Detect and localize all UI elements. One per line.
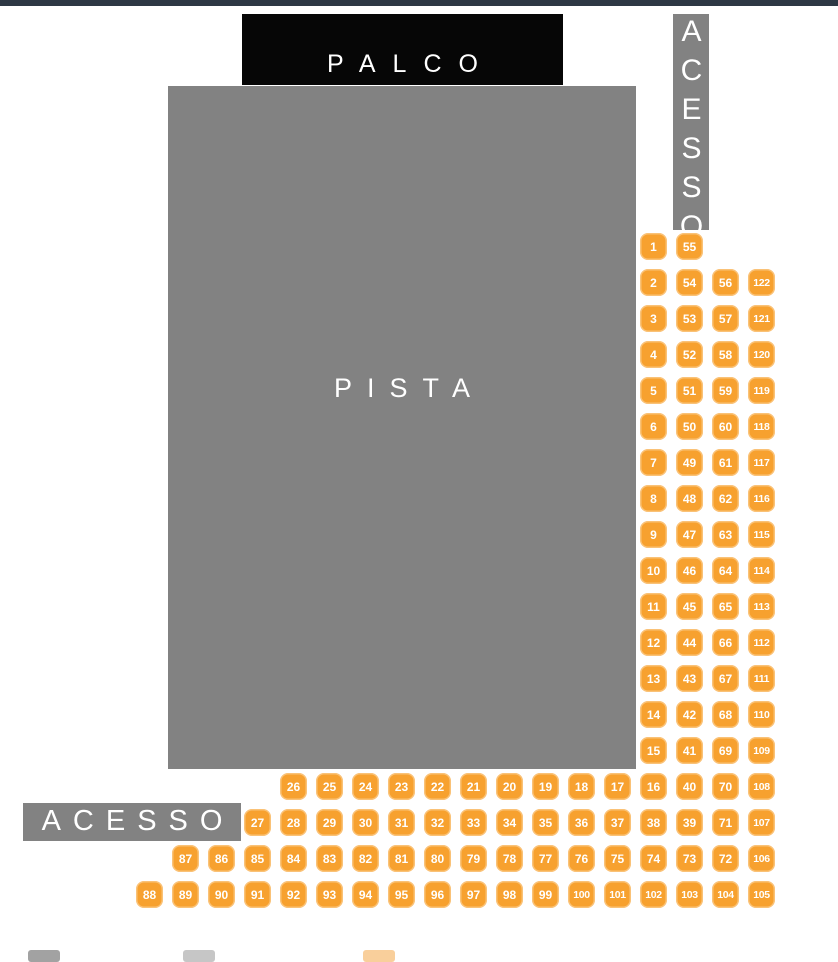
seat-90[interactable]: 90 xyxy=(208,881,235,908)
seat-62[interactable]: 62 xyxy=(712,485,739,512)
seat-55[interactable]: 55 xyxy=(676,233,703,260)
seat-70[interactable]: 70 xyxy=(712,773,739,800)
seat-118[interactable]: 118 xyxy=(748,413,775,440)
seat-17[interactable]: 17 xyxy=(604,773,631,800)
seat-89[interactable]: 89 xyxy=(172,881,199,908)
seat-18[interactable]: 18 xyxy=(568,773,595,800)
seat-113[interactable]: 113 xyxy=(748,593,775,620)
seat-117[interactable]: 117 xyxy=(748,449,775,476)
seat-26[interactable]: 26 xyxy=(280,773,307,800)
seat-119[interactable]: 119 xyxy=(748,377,775,404)
seat-9[interactable]: 9 xyxy=(640,521,667,548)
seat-53[interactable]: 53 xyxy=(676,305,703,332)
seat-20[interactable]: 20 xyxy=(496,773,523,800)
seat-108[interactable]: 108 xyxy=(748,773,775,800)
seat-104[interactable]: 104 xyxy=(712,881,739,908)
seat-76[interactable]: 76 xyxy=(568,845,595,872)
seat-28[interactable]: 28 xyxy=(280,809,307,836)
seat-107[interactable]: 107 xyxy=(748,809,775,836)
seat-36[interactable]: 36 xyxy=(568,809,595,836)
seat-59[interactable]: 59 xyxy=(712,377,739,404)
seat-7[interactable]: 7 xyxy=(640,449,667,476)
seat-93[interactable]: 93 xyxy=(316,881,343,908)
seat-44[interactable]: 44 xyxy=(676,629,703,656)
seat-105[interactable]: 105 xyxy=(748,881,775,908)
seat-39[interactable]: 39 xyxy=(676,809,703,836)
seat-110[interactable]: 110 xyxy=(748,701,775,728)
seat-52[interactable]: 52 xyxy=(676,341,703,368)
seat-32[interactable]: 32 xyxy=(424,809,451,836)
seat-5[interactable]: 5 xyxy=(640,377,667,404)
seat-49[interactable]: 49 xyxy=(676,449,703,476)
seat-4[interactable]: 4 xyxy=(640,341,667,368)
access-corridor-right-label: ACESSO xyxy=(674,14,708,230)
seat-42[interactable]: 42 xyxy=(676,701,703,728)
top-bar xyxy=(0,0,838,6)
seat-98[interactable]: 98 xyxy=(496,881,523,908)
seat-51[interactable]: 51 xyxy=(676,377,703,404)
seat-map-canvas: PALCO PISTA ACESSO ACESSO 15525456122353… xyxy=(0,0,838,954)
seat-69[interactable]: 69 xyxy=(712,737,739,764)
seat-73[interactable]: 73 xyxy=(676,845,703,872)
seat-22[interactable]: 22 xyxy=(424,773,451,800)
seat-25[interactable]: 25 xyxy=(316,773,343,800)
seat-46[interactable]: 46 xyxy=(676,557,703,584)
seat-92[interactable]: 92 xyxy=(280,881,307,908)
seat-56[interactable]: 56 xyxy=(712,269,739,296)
seat-103[interactable]: 103 xyxy=(676,881,703,908)
seat-82[interactable]: 82 xyxy=(352,845,379,872)
access-corridor-right: ACESSO xyxy=(673,14,709,230)
seat-29[interactable]: 29 xyxy=(316,809,343,836)
seat-57[interactable]: 57 xyxy=(712,305,739,332)
seat-81[interactable]: 81 xyxy=(388,845,415,872)
seat-19[interactable]: 19 xyxy=(532,773,559,800)
seat-66[interactable]: 66 xyxy=(712,629,739,656)
seat-41[interactable]: 41 xyxy=(676,737,703,764)
seat-75[interactable]: 75 xyxy=(604,845,631,872)
seat-88[interactable]: 88 xyxy=(136,881,163,908)
legend-swatch-gray xyxy=(28,950,60,962)
seat-109[interactable]: 109 xyxy=(748,737,775,764)
floor-zone-pista: PISTA xyxy=(168,86,636,769)
seat-77[interactable]: 77 xyxy=(532,845,559,872)
stage-label: PALCO xyxy=(310,50,495,85)
seat-45[interactable]: 45 xyxy=(676,593,703,620)
seat-63[interactable]: 63 xyxy=(712,521,739,548)
bottom-seat-block: 2625242322212019181716407010827282930313… xyxy=(136,773,776,909)
seat-99[interactable]: 99 xyxy=(532,881,559,908)
right-seat-block: 1552545612235357121452581205515911965060… xyxy=(640,233,776,801)
seat-30[interactable]: 30 xyxy=(352,809,379,836)
seat-21[interactable]: 21 xyxy=(460,773,487,800)
seat-61[interactable]: 61 xyxy=(712,449,739,476)
seat-8[interactable]: 8 xyxy=(640,485,667,512)
seat-38[interactable]: 38 xyxy=(640,809,667,836)
seat-94[interactable]: 94 xyxy=(352,881,379,908)
seat-1[interactable]: 1 xyxy=(640,233,667,260)
seat-12[interactable]: 12 xyxy=(640,629,667,656)
seat-68[interactable]: 68 xyxy=(712,701,739,728)
seat-114[interactable]: 114 xyxy=(748,557,775,584)
seat-91[interactable]: 91 xyxy=(244,881,271,908)
seat-100[interactable]: 100 xyxy=(568,881,595,908)
seat-54[interactable]: 54 xyxy=(676,269,703,296)
seat-43[interactable]: 43 xyxy=(676,665,703,692)
seat-87[interactable]: 87 xyxy=(172,845,199,872)
seat-74[interactable]: 74 xyxy=(640,845,667,872)
seat-6[interactable]: 6 xyxy=(640,413,667,440)
seat-58[interactable]: 58 xyxy=(712,341,739,368)
seat-96[interactable]: 96 xyxy=(424,881,451,908)
legend-swatch-light-gray xyxy=(183,950,215,962)
seat-86[interactable]: 86 xyxy=(208,845,235,872)
seat-116[interactable]: 116 xyxy=(748,485,775,512)
seat-112[interactable]: 112 xyxy=(748,629,775,656)
legend-swatch-light-orange xyxy=(363,950,395,962)
seat-85[interactable]: 85 xyxy=(244,845,271,872)
seat-14[interactable]: 14 xyxy=(640,701,667,728)
seat-27[interactable]: 27 xyxy=(244,809,271,836)
seat-11[interactable]: 11 xyxy=(640,593,667,620)
seat-10[interactable]: 10 xyxy=(640,557,667,584)
seat-34[interactable]: 34 xyxy=(496,809,523,836)
seat-16[interactable]: 16 xyxy=(640,773,667,800)
seat-64[interactable]: 64 xyxy=(712,557,739,584)
stage-palco: PALCO xyxy=(242,14,563,85)
seat-111[interactable]: 111 xyxy=(748,665,775,692)
seat-47[interactable]: 47 xyxy=(676,521,703,548)
seat-106[interactable]: 106 xyxy=(748,845,775,872)
seat-24[interactable]: 24 xyxy=(352,773,379,800)
seat-65[interactable]: 65 xyxy=(712,593,739,620)
seat-31[interactable]: 31 xyxy=(388,809,415,836)
seat-120[interactable]: 120 xyxy=(748,341,775,368)
seat-79[interactable]: 79 xyxy=(460,845,487,872)
seat-13[interactable]: 13 xyxy=(640,665,667,692)
seat-95[interactable]: 95 xyxy=(388,881,415,908)
seat-84[interactable]: 84 xyxy=(280,845,307,872)
seat-3[interactable]: 3 xyxy=(640,305,667,332)
seat-97[interactable]: 97 xyxy=(460,881,487,908)
seat-33[interactable]: 33 xyxy=(460,809,487,836)
seat-122[interactable]: 122 xyxy=(748,269,775,296)
floor-zone-label: PISTA xyxy=(168,373,636,404)
seat-48[interactable]: 48 xyxy=(676,485,703,512)
seat-35[interactable]: 35 xyxy=(532,809,559,836)
seat-67[interactable]: 67 xyxy=(712,665,739,692)
seat-78[interactable]: 78 xyxy=(496,845,523,872)
seat-101[interactable]: 101 xyxy=(604,881,631,908)
seat-102[interactable]: 102 xyxy=(640,881,667,908)
seat-37[interactable]: 37 xyxy=(604,809,631,836)
seat-72[interactable]: 72 xyxy=(712,845,739,872)
seat-80[interactable]: 80 xyxy=(424,845,451,872)
seat-40[interactable]: 40 xyxy=(676,773,703,800)
seat-15[interactable]: 15 xyxy=(640,737,667,764)
seat-50[interactable]: 50 xyxy=(676,413,703,440)
seat-121[interactable]: 121 xyxy=(748,305,775,332)
seat-60[interactable]: 60 xyxy=(712,413,739,440)
seat-115[interactable]: 115 xyxy=(748,521,775,548)
seat-2[interactable]: 2 xyxy=(640,269,667,296)
seat-83[interactable]: 83 xyxy=(316,845,343,872)
seat-23[interactable]: 23 xyxy=(388,773,415,800)
seat-71[interactable]: 71 xyxy=(712,809,739,836)
